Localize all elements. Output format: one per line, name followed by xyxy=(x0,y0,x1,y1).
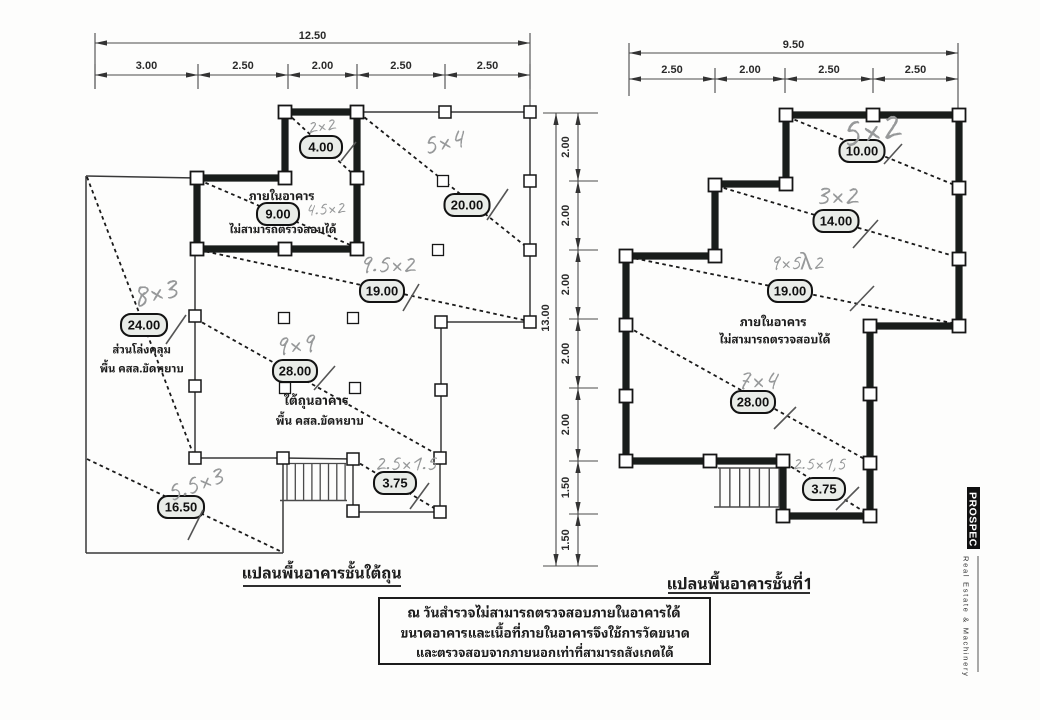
svg-text:2.50: 2.50 xyxy=(661,64,682,76)
svg-text:12.50: 12.50 xyxy=(299,30,327,42)
svg-text:3.00: 3.00 xyxy=(136,60,157,72)
svg-text:2.00: 2.00 xyxy=(560,414,572,435)
svg-text:2.00: 2.00 xyxy=(560,343,572,364)
svg-text:9.50: 9.50 xyxy=(783,39,804,51)
svg-text:16.50: 16.50 xyxy=(165,500,198,515)
svg-text:19.00: 19.00 xyxy=(774,284,807,299)
svg-text:2.50: 2.50 xyxy=(477,60,498,72)
svg-text:3.75: 3.75 xyxy=(811,482,836,497)
svg-text:2.50: 2.50 xyxy=(818,64,839,76)
svg-text:24.00: 24.00 xyxy=(128,318,161,333)
svg-text:28.00: 28.00 xyxy=(737,395,770,410)
svg-text:2.50: 2.50 xyxy=(232,60,253,72)
svg-text:19.00: 19.00 xyxy=(366,284,399,299)
svg-text:2.50: 2.50 xyxy=(390,60,411,72)
svg-text:3.75: 3.75 xyxy=(382,476,407,491)
svg-text:2.00: 2.00 xyxy=(312,60,333,72)
svg-text:1.50: 1.50 xyxy=(560,477,572,498)
svg-text:2.50: 2.50 xyxy=(905,64,926,76)
svg-text:4.00: 4.00 xyxy=(308,140,333,155)
svg-text:Real Estate & Machinery: Real Estate & Machinery xyxy=(962,556,971,678)
svg-text:2.00: 2.00 xyxy=(560,205,572,226)
svg-text:2.00: 2.00 xyxy=(560,274,572,295)
svg-text:2.00: 2.00 xyxy=(739,64,760,76)
svg-text:2.00: 2.00 xyxy=(560,136,572,157)
svg-text:20.00: 20.00 xyxy=(451,198,484,213)
svg-text:1.50: 1.50 xyxy=(560,529,572,550)
svg-text:14.00: 14.00 xyxy=(820,214,853,229)
svg-text:13.00: 13.00 xyxy=(540,304,552,332)
svg-text:PROSPEC: PROSPEC xyxy=(967,492,979,547)
svg-text:9.00: 9.00 xyxy=(265,207,290,222)
svg-text:28.00: 28.00 xyxy=(279,364,312,379)
